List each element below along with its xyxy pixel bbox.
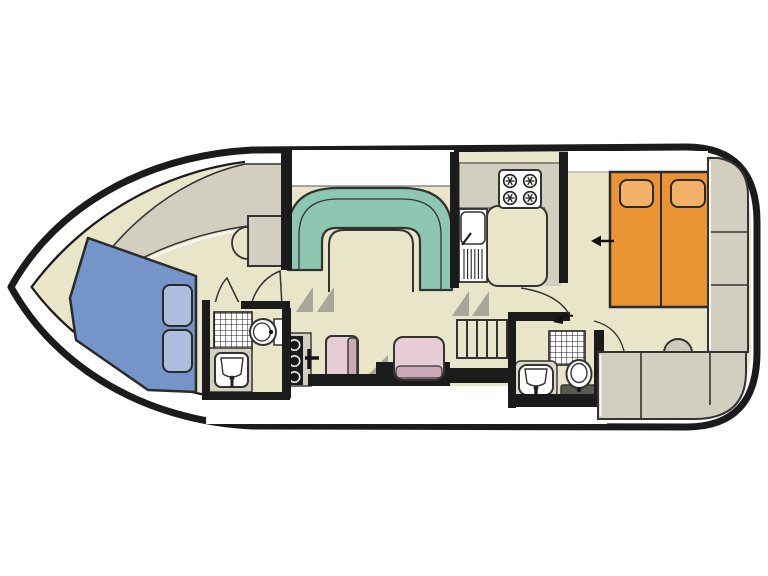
wall-saloon-bottom	[308, 374, 393, 386]
boat-floor-plan	[0, 0, 768, 576]
fwd-shower-tray	[214, 312, 252, 349]
aft-side-cabinets	[708, 158, 748, 352]
bottom-deck-mid	[285, 386, 516, 424]
wall-bow-saloon-upper	[281, 152, 292, 270]
burner-3	[504, 192, 517, 205]
aft-toilet-flush	[577, 388, 581, 392]
wall-aft-bath-bottom	[508, 394, 606, 407]
bow-corner-cabinet	[248, 216, 284, 266]
bed-pillow-2	[163, 330, 192, 372]
stairs	[457, 320, 513, 358]
bottom-deck-aft	[510, 407, 607, 424]
galley-sink-basin	[461, 212, 485, 244]
forward-bathroom	[206, 302, 286, 398]
burner-4	[524, 192, 537, 205]
fwd-toilet-flush	[269, 330, 273, 334]
copilot-seat-cushion	[396, 366, 442, 378]
wall-galley-left	[450, 152, 459, 288]
wall-fwd-bathroom-top	[241, 301, 290, 309]
wall-fwd-bathroom-bottom	[202, 392, 290, 400]
aft-pillow-2	[671, 180, 705, 207]
boat-floor-plan-canvas	[0, 0, 768, 576]
aft-window-band	[568, 151, 708, 172]
dinette-table	[329, 230, 413, 292]
wall-stairs-bottom	[448, 368, 518, 383]
fwd-basin-tap-dot	[230, 376, 235, 381]
galley	[459, 163, 561, 286]
wall-galley-right	[559, 152, 568, 283]
burner-1	[504, 175, 517, 188]
aft-bottom-cabinets	[598, 352, 746, 419]
aft-basin-tap-dot	[534, 386, 539, 391]
saloon-window-band	[292, 150, 454, 186]
wall-fwd-bathroom-right	[282, 308, 291, 398]
bottom-deck-bow	[206, 400, 290, 424]
helm-seat-backrest	[348, 338, 357, 379]
bed-pillow-1	[163, 285, 192, 326]
aft-pillow-1	[620, 180, 653, 207]
burner-2	[524, 175, 537, 188]
wall-aft-bath-left	[508, 312, 516, 408]
fwd-washbasin-bowl	[221, 358, 243, 377]
aft-washbasin-bowl	[525, 369, 547, 386]
galley-peninsula	[487, 206, 547, 286]
wall-fwd-bathroom-left	[202, 300, 210, 400]
